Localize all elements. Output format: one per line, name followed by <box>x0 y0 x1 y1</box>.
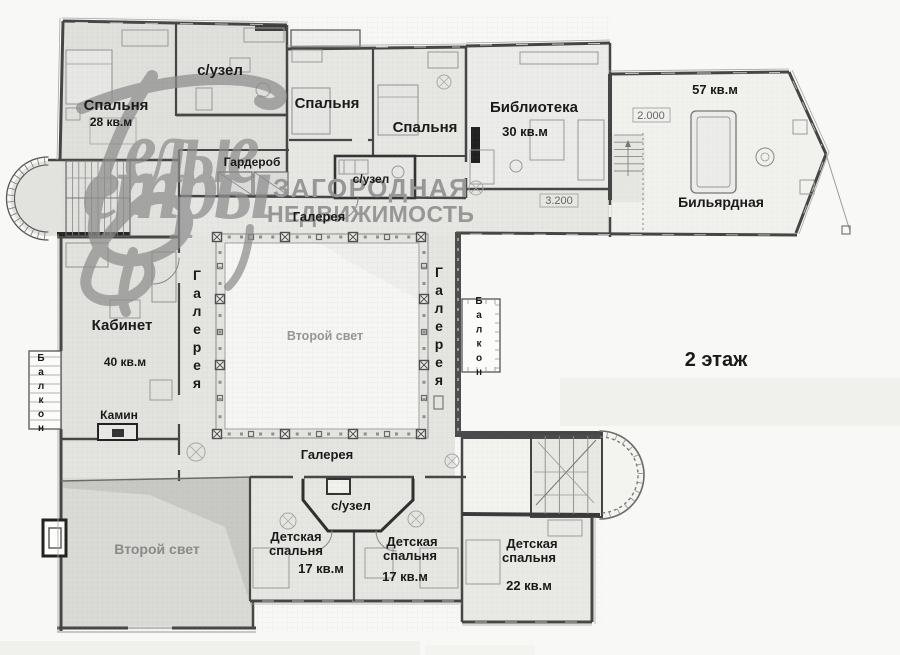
svg-text:л: л <box>38 381 44 392</box>
svg-text:н: н <box>476 367 482 378</box>
svg-text:л: л <box>476 324 482 335</box>
svg-text:е: е <box>193 357 201 373</box>
svg-text:л: л <box>435 300 444 316</box>
svg-text:спальня: спальня <box>269 543 323 558</box>
svg-text:етры: етры <box>82 135 271 239</box>
svg-text:р: р <box>193 339 202 355</box>
svg-text:н: н <box>38 423 44 434</box>
svg-text:а: а <box>38 367 44 378</box>
svg-text:е: е <box>435 354 443 370</box>
svg-text:с/узел: с/узел <box>197 62 243 79</box>
svg-text:л: л <box>193 303 202 319</box>
svg-text:р: р <box>435 336 444 352</box>
svg-text:Б: Б <box>475 296 482 307</box>
svg-text:е: е <box>435 318 443 334</box>
svg-text:Галерея: Галерея <box>293 209 346 224</box>
svg-text:Библиотека: Библиотека <box>490 99 579 116</box>
svg-text:Бильярдная: Бильярдная <box>678 194 764 210</box>
svg-text:Г: Г <box>193 267 201 283</box>
svg-text:Камин: Камин <box>100 408 138 422</box>
svg-text:я: я <box>435 372 443 388</box>
svg-text:с/узел: с/узел <box>331 498 371 513</box>
svg-text:о: о <box>38 409 44 420</box>
svg-text:Г: Г <box>435 264 443 280</box>
svg-text:Детская: Детская <box>386 534 437 549</box>
svg-text:Детская: Детская <box>270 529 321 544</box>
svg-text:а: а <box>476 310 482 321</box>
svg-text:Б: Б <box>37 353 44 364</box>
svg-text:спальня: спальня <box>383 548 437 563</box>
svg-text:28 кв.м: 28 кв.м <box>90 115 132 129</box>
svg-text:Гардероб: Гардероб <box>224 155 281 169</box>
svg-text:17 кв.м: 17 кв.м <box>298 561 344 576</box>
svg-text:Второй свет: Второй свет <box>114 541 200 557</box>
svg-text:а: а <box>435 282 443 298</box>
svg-text:57 кв.м: 57 кв.м <box>692 82 738 97</box>
svg-text:2 этаж: 2 этаж <box>685 349 748 371</box>
svg-text:Спальня: Спальня <box>84 97 149 114</box>
svg-text:а: а <box>193 285 201 301</box>
svg-text:Кабинет: Кабинет <box>92 317 153 334</box>
svg-text:спальня: спальня <box>502 550 556 565</box>
svg-text:Спальня: Спальня <box>295 95 360 112</box>
svg-text:17 кв.м: 17 кв.м <box>382 569 428 584</box>
svg-text:Спальня: Спальня <box>393 119 458 136</box>
svg-text:о: о <box>476 353 482 364</box>
svg-text:30 кв.м: 30 кв.м <box>502 124 548 139</box>
svg-text:е: е <box>193 321 201 337</box>
svg-text:Галерея: Галерея <box>301 447 354 462</box>
svg-text:я: я <box>193 375 201 391</box>
svg-text:22 кв.м: 22 кв.м <box>506 578 552 593</box>
svg-text:Детская: Детская <box>506 536 557 551</box>
svg-text:Второй свет: Второй свет <box>287 329 363 343</box>
svg-text:40 кв.м: 40 кв.м <box>104 355 146 369</box>
svg-text:с/узел: с/узел <box>353 172 390 186</box>
